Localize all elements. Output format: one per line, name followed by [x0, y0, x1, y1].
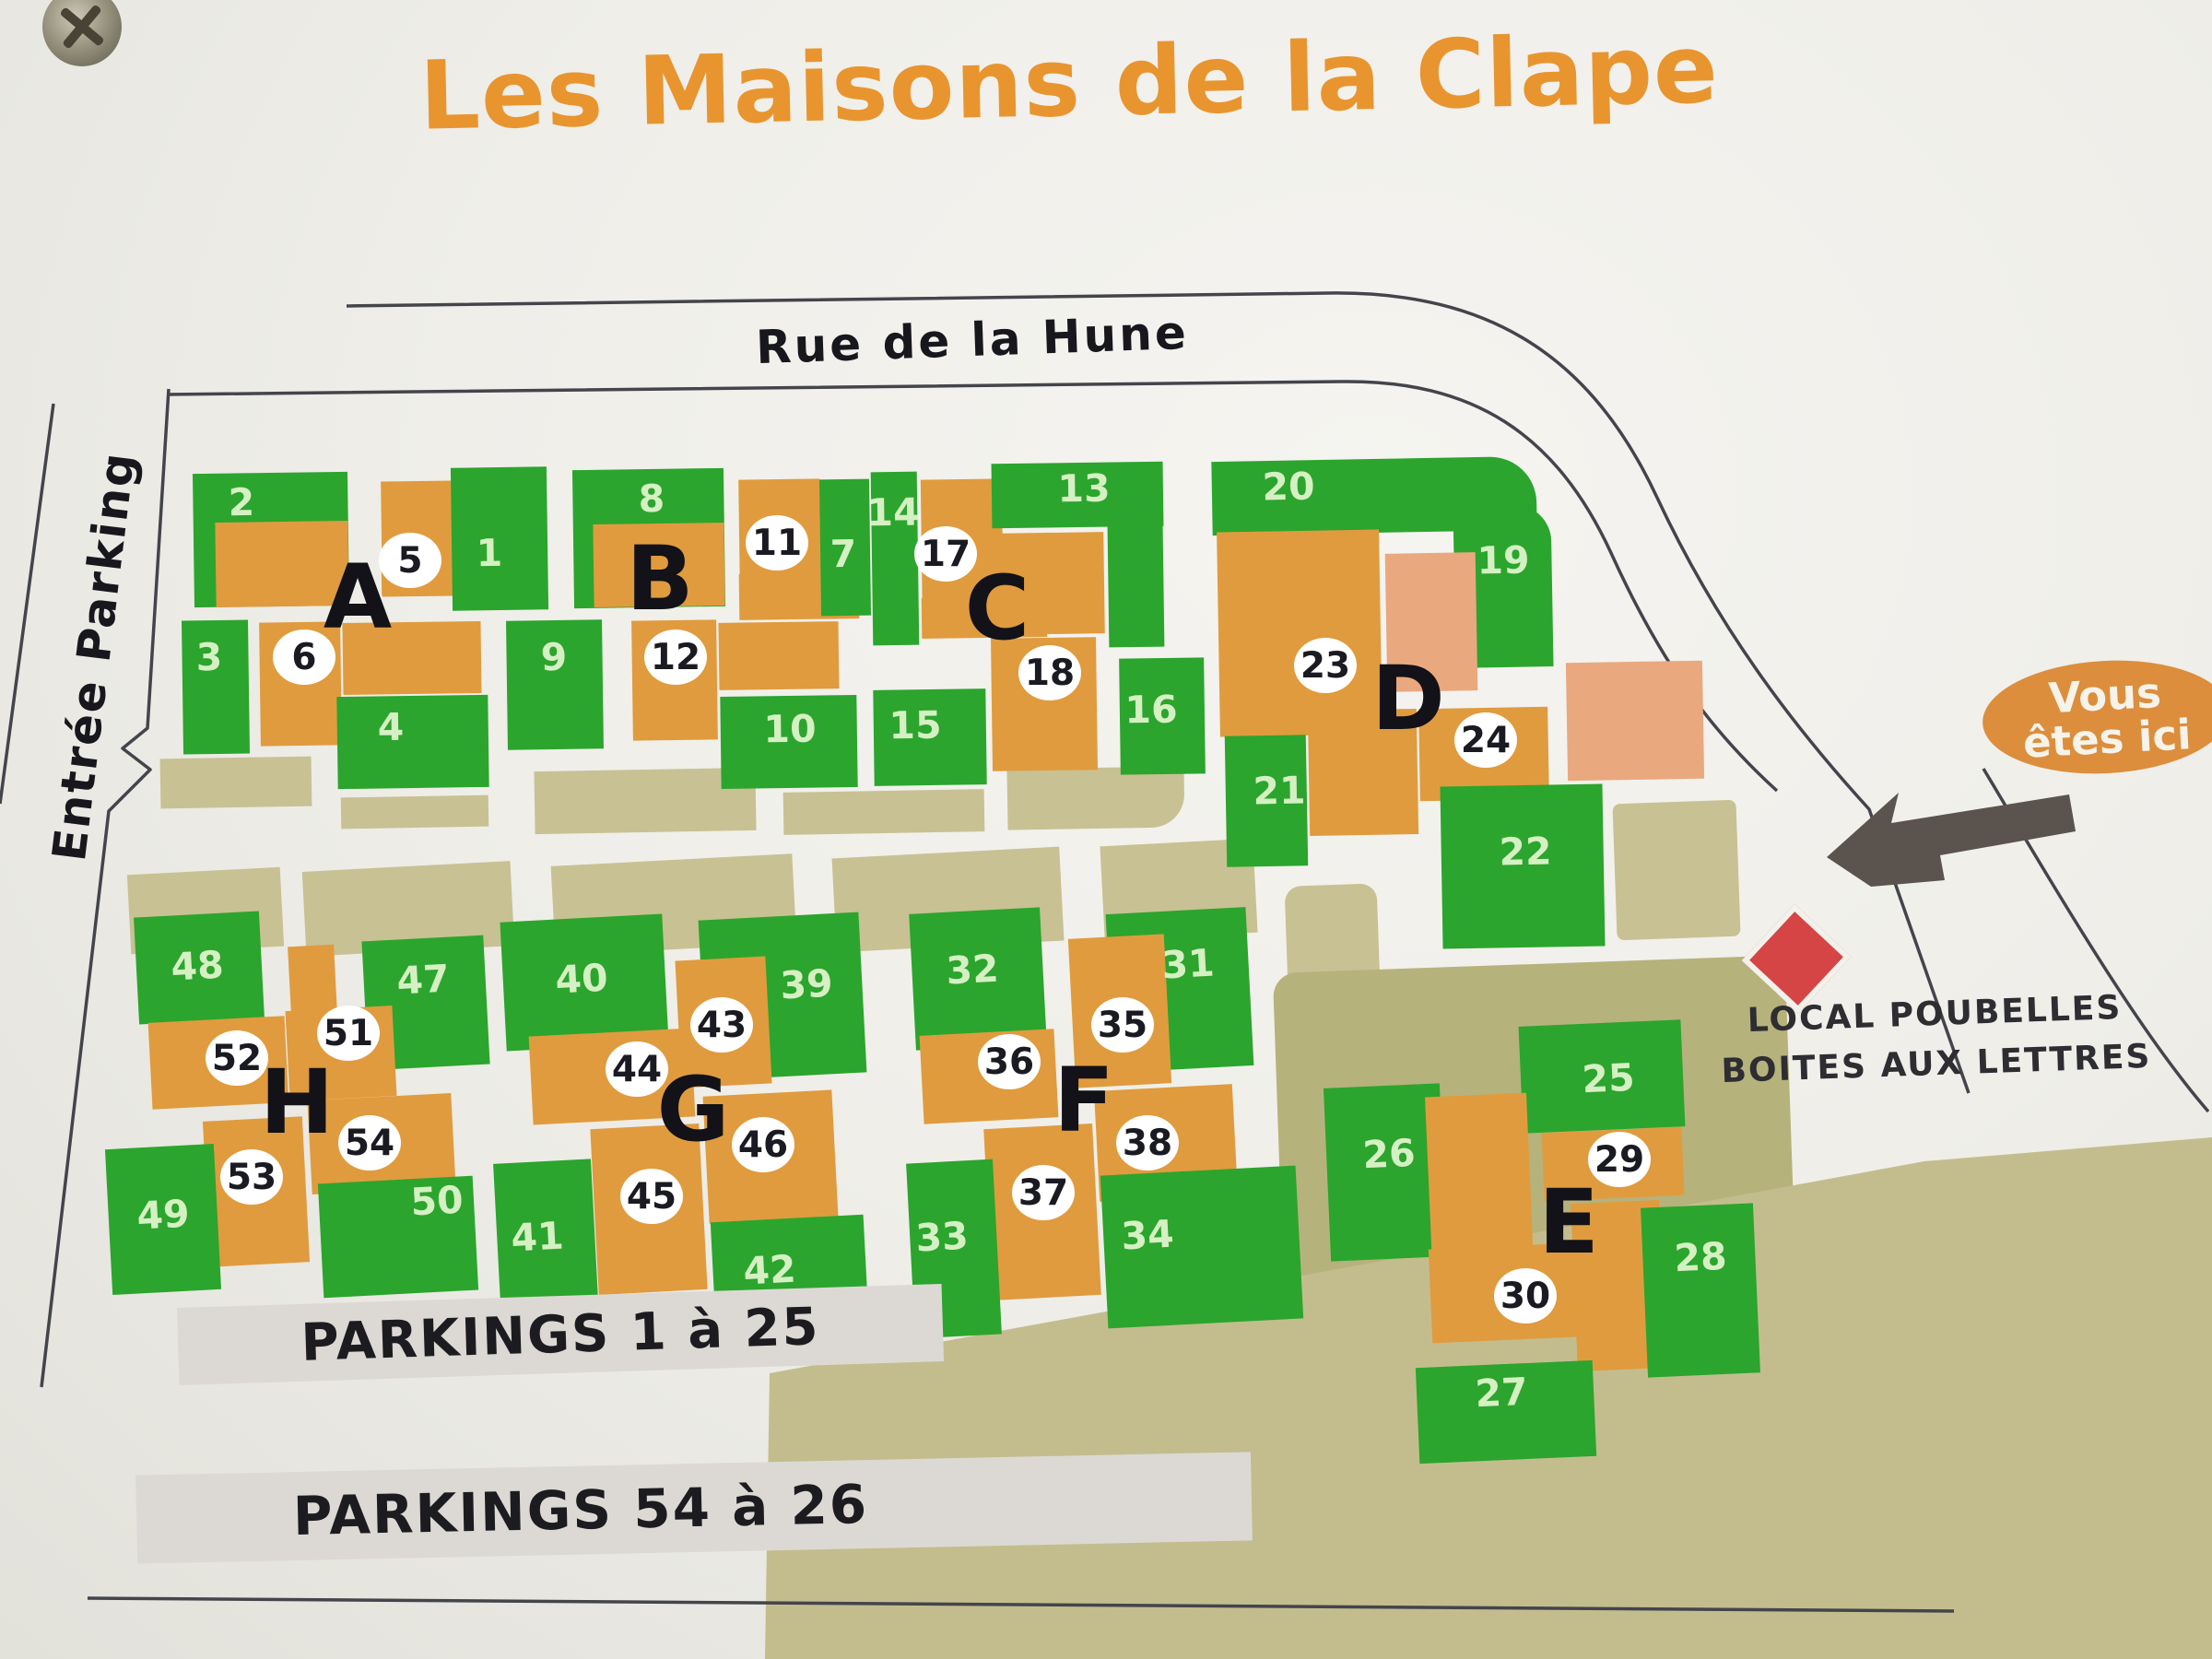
plot-28 — [1641, 1203, 1760, 1377]
house-number-52: 52 — [206, 1030, 268, 1086]
site-map-sign: Les Maisons de la Clape Rue de la Hune E… — [0, 0, 2212, 1659]
plot-number-16: 16 — [1124, 688, 1178, 733]
house-number-45: 45 — [620, 1169, 683, 1224]
house-number-11: 11 — [746, 515, 808, 571]
house-number-35: 35 — [1091, 997, 1154, 1053]
plot-number-21: 21 — [1253, 769, 1306, 814]
plot-number-33: 33 — [914, 1214, 969, 1261]
block-letter-C: C — [965, 564, 1030, 653]
plot-number-4: 4 — [377, 705, 404, 749]
house-number-38: 38 — [1116, 1115, 1179, 1171]
house-number-43: 43 — [690, 997, 753, 1053]
parking-strip-54-26-label: PARKINGS 54 à 26 — [292, 1473, 869, 1547]
you-are-here-arrow-icon — [1827, 793, 2076, 887]
roads-layer — [0, 0, 2212, 1659]
building-unnumbered — [1566, 661, 1704, 782]
plot-number-15: 15 — [888, 703, 942, 748]
plot-number-1: 1 — [476, 531, 502, 575]
plot-number-7: 7 — [829, 532, 856, 576]
building-unnumbered — [718, 621, 839, 690]
facilities-label: LOCAL POUBELLES BOITES AUX LETTRES — [1719, 982, 2153, 1097]
plot-number-3: 3 — [195, 635, 222, 679]
block-letter-B: B — [626, 535, 693, 623]
you-are-here-line2: êtes ici — [2022, 712, 2193, 765]
block-letter-E: E — [1538, 1178, 1599, 1266]
house-number-23: 23 — [1294, 638, 1357, 693]
block-letter-F: F — [1053, 1056, 1114, 1145]
plot-number-20: 20 — [1262, 465, 1315, 510]
plot-number-22: 22 — [1499, 829, 1552, 875]
plot-number-26: 26 — [1361, 1131, 1416, 1177]
plot-green — [1107, 463, 1165, 648]
road-line — [0, 404, 53, 804]
plot-number-48: 48 — [170, 943, 224, 990]
house-number-24: 24 — [1454, 712, 1517, 768]
house-number-54: 54 — [338, 1115, 401, 1171]
block-letter-G: G — [657, 1065, 730, 1154]
house-number-53: 53 — [220, 1149, 283, 1205]
house-number-30: 30 — [1494, 1268, 1557, 1324]
plot-number-8: 8 — [638, 477, 665, 521]
plot-number-32: 32 — [945, 947, 999, 994]
house-number-36: 36 — [978, 1034, 1041, 1089]
plot-number-19: 19 — [1477, 538, 1530, 583]
plot-4 — [336, 695, 488, 789]
plot-number-2: 2 — [228, 480, 254, 524]
house-number-12: 12 — [644, 629, 707, 685]
parking-strip-1-25-label: PARKINGS 1 à 25 — [300, 1297, 821, 1373]
plot-number-9: 9 — [540, 635, 567, 679]
block-letter-A: A — [324, 553, 392, 641]
plot-number-28: 28 — [1673, 1234, 1727, 1280]
plot-number-49: 49 — [135, 1192, 190, 1239]
plot-number-14: 14 — [866, 490, 920, 535]
building-unnumbered — [1425, 1093, 1534, 1267]
block-letter-D: D — [1371, 654, 1445, 743]
plot-number-47: 47 — [395, 957, 450, 1004]
block-letter-H: H — [260, 1058, 334, 1147]
plot-number-40: 40 — [554, 956, 608, 1003]
plot-number-50: 50 — [409, 1178, 464, 1225]
house-number-37: 37 — [1012, 1165, 1075, 1220]
plot-number-25: 25 — [1581, 1055, 1635, 1101]
building-23 — [1217, 529, 1382, 736]
house-number-46: 46 — [732, 1117, 794, 1172]
plot-number-42: 42 — [742, 1247, 796, 1294]
plot-number-27: 27 — [1474, 1370, 1528, 1416]
plot-number-31: 31 — [1160, 941, 1215, 988]
building-unnumbered — [288, 945, 337, 1016]
plot-number-41: 41 — [510, 1214, 564, 1261]
plot-number-39: 39 — [779, 961, 833, 1008]
plot-number-10: 10 — [763, 707, 817, 752]
plot-number-13: 13 — [1057, 466, 1111, 512]
map-layer: 251364A811791210B141713181615C2019232421… — [0, 0, 2212, 1659]
plot-number-34: 34 — [1120, 1212, 1174, 1259]
